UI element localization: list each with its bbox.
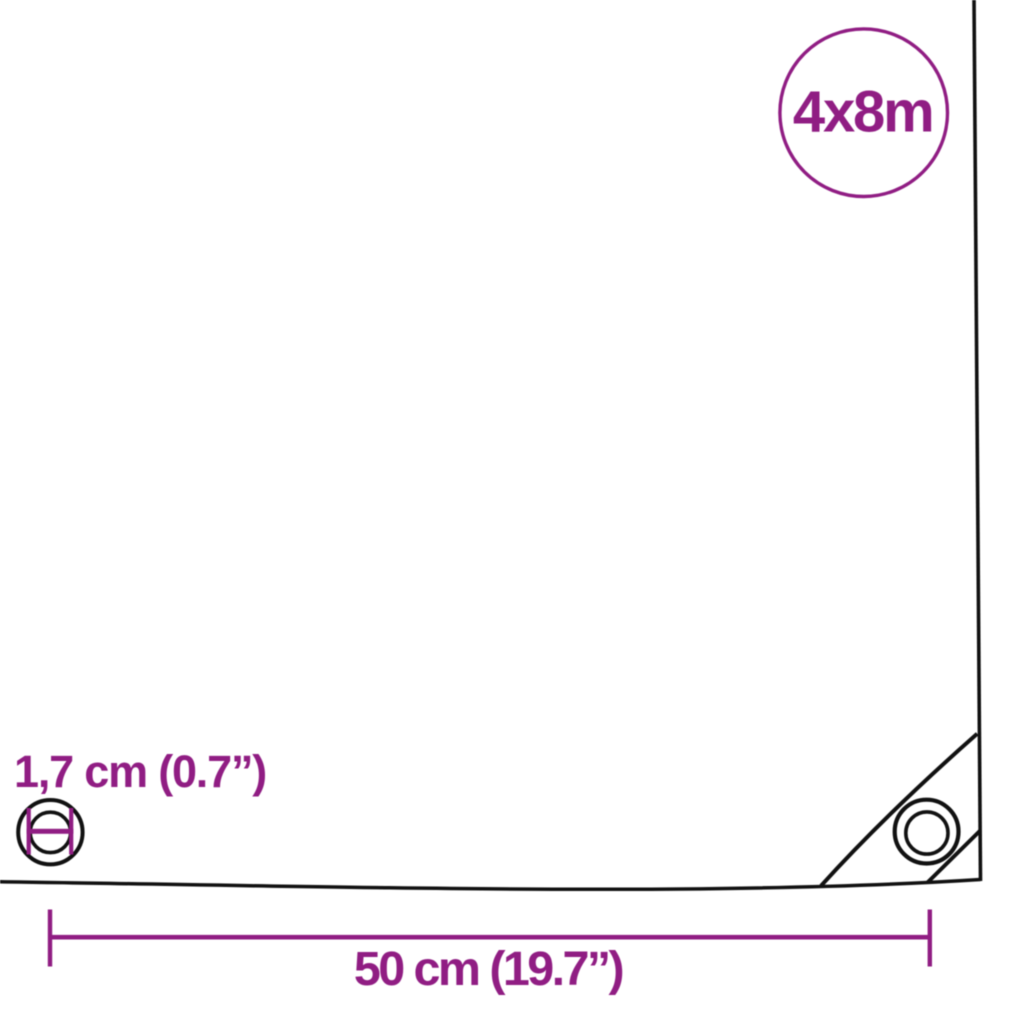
svg-text:50 cm (19.7”): 50 cm (19.7”) (354, 942, 623, 996)
svg-text:1,7 cm (0.7”): 1,7 cm (0.7”) (14, 746, 266, 797)
svg-text:4x8m: 4x8m (793, 80, 933, 145)
